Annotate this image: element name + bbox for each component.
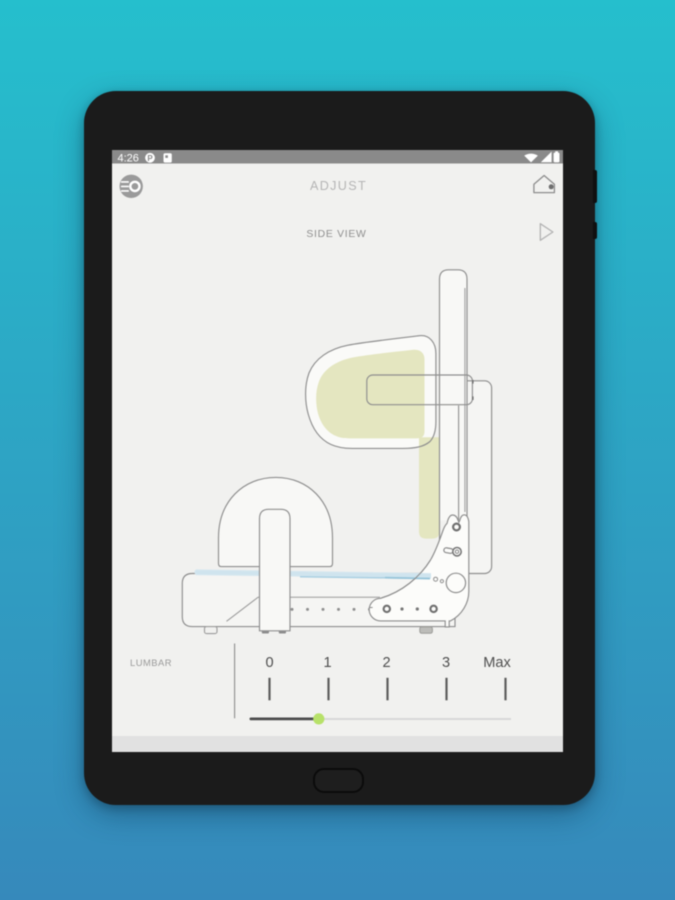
svg-text:SIDE VIEW: SIDE VIEW bbox=[306, 229, 366, 240]
svg-text:Max: Max bbox=[483, 655, 511, 671]
svg-text:LUMBAR: LUMBAR bbox=[130, 657, 172, 668]
svg-text:4:26: 4:26 bbox=[118, 153, 139, 165]
svg-text:P: P bbox=[147, 154, 153, 163]
svg-text:2: 2 bbox=[382, 655, 390, 671]
svg-text:1: 1 bbox=[323, 655, 331, 671]
svg-text:0: 0 bbox=[265, 655, 273, 671]
svg-text:3: 3 bbox=[442, 655, 450, 671]
svg-text:ADJUST: ADJUST bbox=[310, 179, 367, 193]
